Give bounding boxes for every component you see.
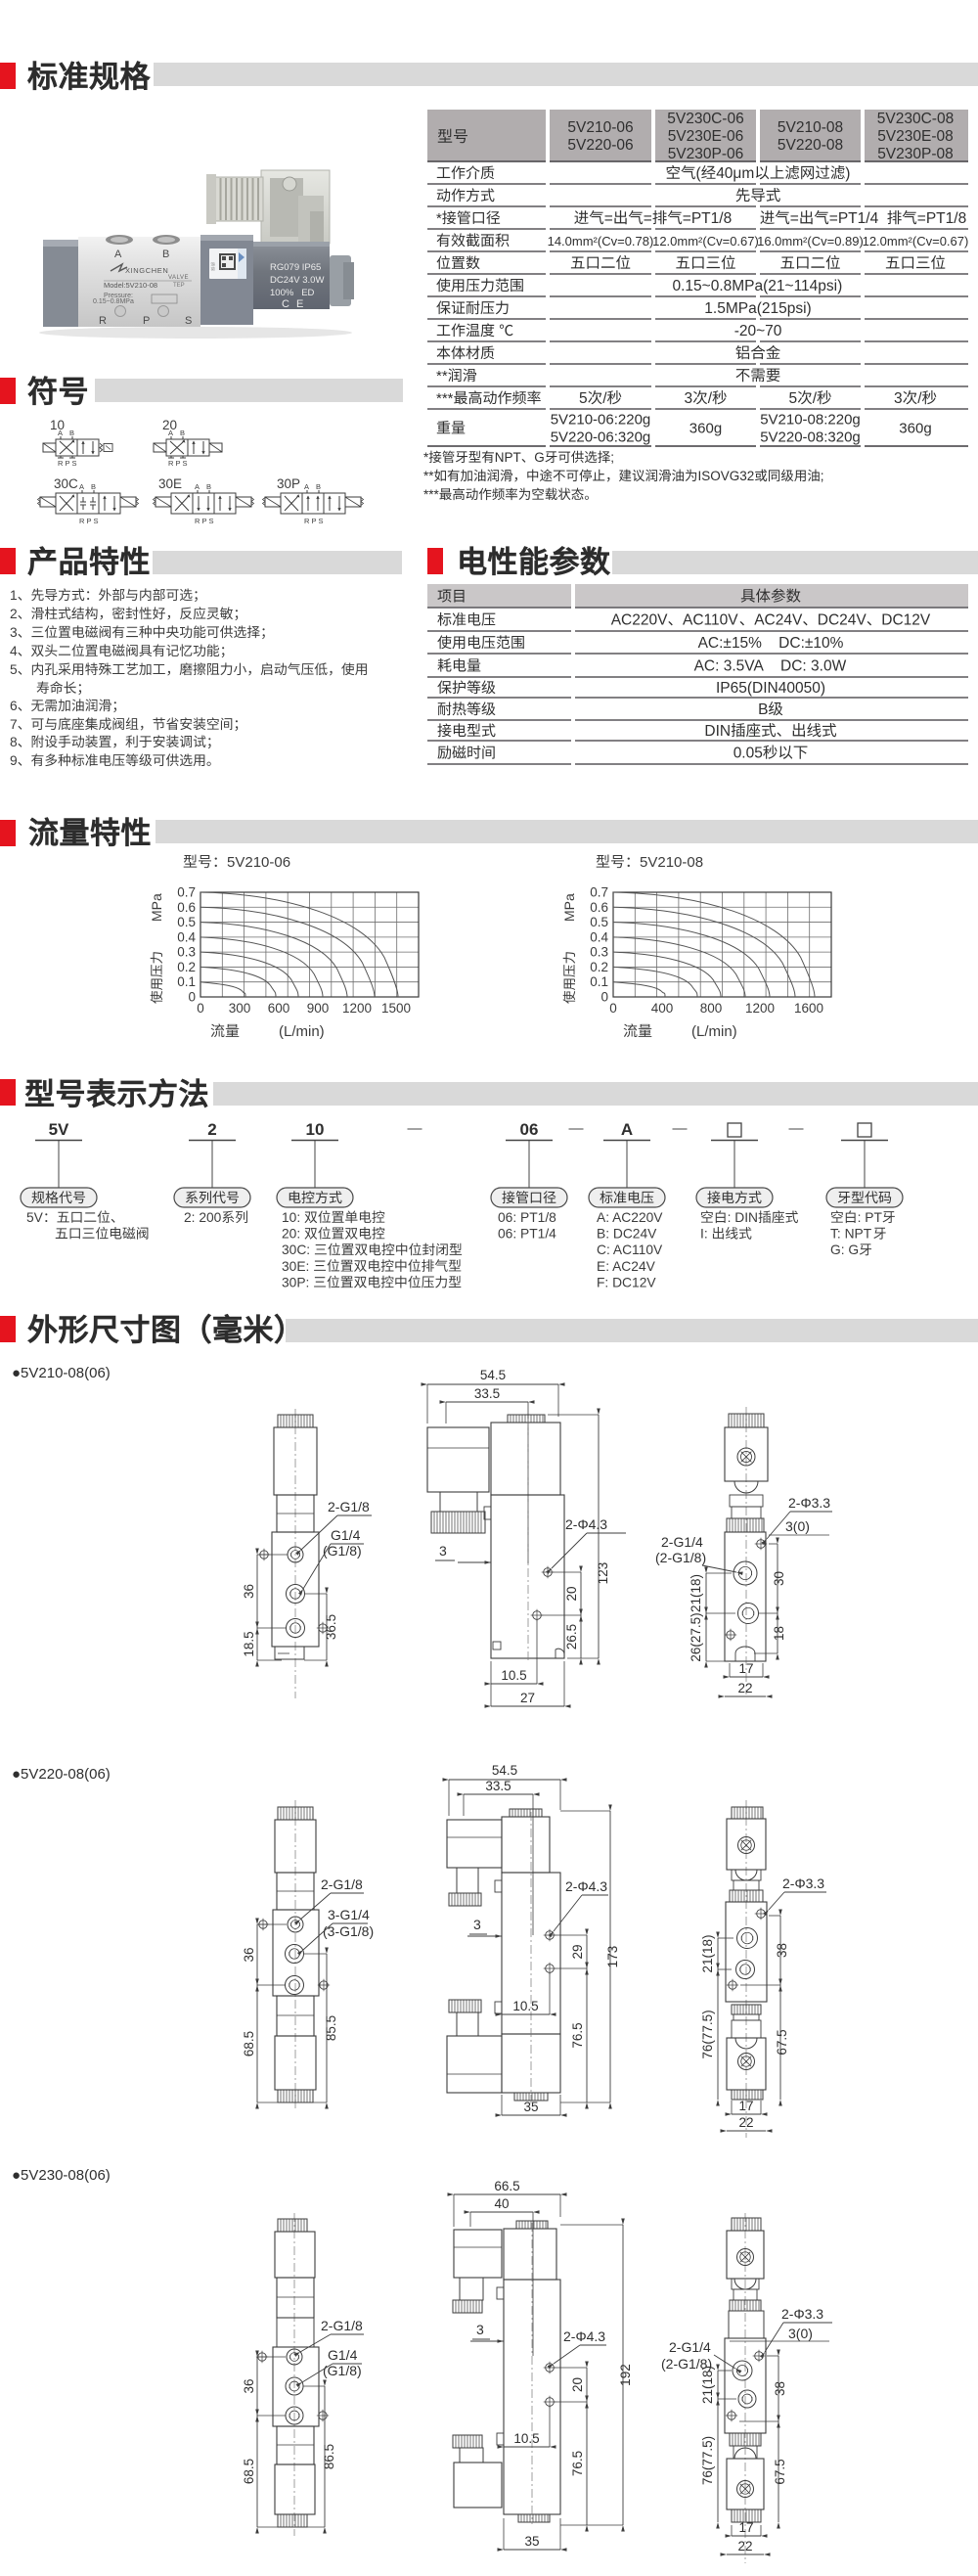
svg-text:MPa: MPa xyxy=(149,893,164,922)
svg-text:G1/4: G1/4 xyxy=(331,1527,361,1543)
svg-text:DC24V: DC24V xyxy=(818,612,867,629)
svg-text:10.5: 10.5 xyxy=(512,1999,538,2013)
svg-text:(L/min): (L/min) xyxy=(691,1023,737,1040)
svg-text:20: 20 xyxy=(570,2377,585,2392)
svg-text:B: B xyxy=(69,429,74,437)
svg-text:18.5: 18.5 xyxy=(242,1631,256,1656)
svg-text:300: 300 xyxy=(229,1001,251,1016)
svg-text:0.1: 0.1 xyxy=(590,974,608,989)
svg-text:0: 0 xyxy=(609,1001,617,1016)
svg-text:(: ( xyxy=(696,165,702,182)
svg-text:0.2: 0.2 xyxy=(590,960,608,974)
svg-text:800: 800 xyxy=(700,1001,723,1016)
svg-text:06: PT1/4: 06: PT1/4 xyxy=(498,1227,556,1242)
svg-text:600: 600 xyxy=(268,1001,290,1016)
svg-text:21(18): 21(18) xyxy=(700,1934,715,1972)
svg-text:10: 10 xyxy=(306,1120,325,1139)
svg-text:=: = xyxy=(790,210,799,227)
svg-text:22: 22 xyxy=(738,1681,753,1695)
svg-text:=: = xyxy=(604,210,613,227)
svg-text:B: B xyxy=(316,482,321,491)
svg-text:36: 36 xyxy=(242,1947,256,1962)
svg-text:5V230E-08: 5V230E-08 xyxy=(877,128,954,145)
svg-text:C: AC110V: C: AC110V xyxy=(597,1243,663,1257)
svg-text:RG079 IP65: RG079 IP65 xyxy=(270,262,321,273)
svg-text:): ) xyxy=(845,165,850,182)
svg-text:12.0mm²(Cv=0.67): 12.0mm²(Cv=0.67) xyxy=(863,234,969,249)
svg-text:A: A xyxy=(195,482,200,491)
svg-text:30: 30 xyxy=(772,1571,786,1586)
svg-text:3: 3 xyxy=(685,390,693,407)
svg-text:3(0): 3(0) xyxy=(785,1518,810,1534)
svg-text:20:: 20: xyxy=(282,1227,300,1242)
svg-text:5: 5 xyxy=(579,390,588,407)
svg-text:1500: 1500 xyxy=(381,1001,411,1016)
svg-text:=PT1/4: =PT1/4 xyxy=(829,210,887,227)
svg-text:0.7: 0.7 xyxy=(177,885,196,900)
svg-text:1600: 1600 xyxy=(794,1001,823,1016)
svg-text:/: / xyxy=(813,390,818,407)
svg-text:100% ED: 100% ED xyxy=(270,288,315,298)
svg-text:8: 8 xyxy=(10,735,18,749)
svg-text:;: ; xyxy=(821,469,824,483)
svg-text:36.5: 36.5 xyxy=(324,1614,338,1640)
svg-text:E: AC24V: E: AC24V xyxy=(597,1259,656,1274)
svg-text:●5V230-08(06): ●5V230-08(06) xyxy=(12,2167,111,2184)
svg-text:F: DC12V: F: DC12V xyxy=(597,1275,656,1289)
svg-text:76(77.5): 76(77.5) xyxy=(700,2010,715,2058)
svg-text:0: 0 xyxy=(189,990,197,1005)
svg-text:0.7: 0.7 xyxy=(590,885,608,900)
svg-text:;: ; xyxy=(610,450,614,465)
svg-text:2-G1/8: 2-G1/8 xyxy=(321,1876,363,1892)
svg-text:18: 18 xyxy=(772,1626,786,1641)
svg-text:38: 38 xyxy=(775,1943,789,1958)
svg-text:(L/min): (L/min) xyxy=(279,1023,325,1040)
svg-text:30C: 30C xyxy=(54,476,78,491)
svg-text:: DIN: : DIN xyxy=(728,1210,758,1225)
svg-text:5V220-06: 5V220-06 xyxy=(567,137,633,154)
svg-text:-20~70: -20~70 xyxy=(734,323,782,339)
svg-text:AC220V: AC220V xyxy=(611,612,668,629)
svg-text:76(77.5): 76(77.5) xyxy=(700,2436,715,2485)
svg-text:3: 3 xyxy=(476,2322,484,2337)
svg-text:5V220-06:320g: 5V220-06:320g xyxy=(551,429,651,446)
svg-text:26.5: 26.5 xyxy=(564,1624,579,1650)
svg-text:3: 3 xyxy=(894,390,903,407)
svg-text:76.5: 76.5 xyxy=(570,2022,585,2048)
svg-text:0.6: 0.6 xyxy=(590,900,608,915)
svg-text:2-G1/4: 2-G1/4 xyxy=(661,1534,703,1550)
svg-text:36: 36 xyxy=(242,2378,256,2393)
svg-text:2-Φ3.3: 2-Φ3.3 xyxy=(782,1876,824,1891)
svg-text:●5V210-08(06): ●5V210-08(06) xyxy=(12,1365,111,1381)
svg-text:—: — xyxy=(569,1120,584,1137)
svg-text:A: A xyxy=(114,249,122,260)
svg-text:B: B xyxy=(162,249,169,260)
svg-text:*: * xyxy=(436,210,442,227)
svg-text:G: G xyxy=(534,450,545,465)
svg-text:A: A xyxy=(621,1120,633,1139)
svg-text:36: 36 xyxy=(242,1584,256,1599)
svg-text:*: * xyxy=(423,450,429,465)
svg-text:A: AC220V: A: AC220V xyxy=(597,1210,663,1225)
svg-text:AC: 3.5VA DC: 3.0W: AC: 3.5VA DC: 3.0W xyxy=(694,658,847,675)
svg-text:0.4: 0.4 xyxy=(590,929,608,944)
svg-text:10:: 10: xyxy=(282,1210,300,1225)
svg-text:5V220-08:320g: 5V220-08:320g xyxy=(760,429,861,446)
svg-text:AC24V: AC24V xyxy=(754,612,803,629)
svg-text:3(0): 3(0) xyxy=(788,2326,813,2341)
svg-text:67.5: 67.5 xyxy=(775,2029,789,2055)
svg-text:2-G1/4: 2-G1/4 xyxy=(669,2339,711,2355)
svg-text:DIN: DIN xyxy=(704,723,731,740)
svg-text:A: A xyxy=(168,429,173,437)
svg-text:1200: 1200 xyxy=(342,1001,372,1016)
svg-text:173: 173 xyxy=(605,1946,620,1968)
svg-text:/: / xyxy=(917,390,922,407)
svg-text:5: 5 xyxy=(10,662,18,677)
svg-text:40: 40 xyxy=(495,2196,510,2211)
svg-text:5V210-08:220g: 5V210-08:220g xyxy=(760,412,861,429)
svg-text:27: 27 xyxy=(520,1691,535,1705)
svg-text:ISOVG32: ISOVG32 xyxy=(698,469,755,483)
svg-text:68.5: 68.5 xyxy=(242,2031,256,2056)
svg-text:400: 400 xyxy=(651,1001,674,1016)
svg-text:7: 7 xyxy=(10,717,18,732)
svg-text:10.5: 10.5 xyxy=(501,1668,526,1683)
svg-text:21(18): 21(18) xyxy=(689,1574,703,1612)
svg-text:C E: C E xyxy=(282,298,305,310)
svg-text:30P: 30P xyxy=(277,476,300,491)
svg-text:MPa: MPa xyxy=(561,893,577,922)
svg-text:360g: 360g xyxy=(899,421,931,437)
svg-text:5V230P-08: 5V230P-08 xyxy=(877,146,954,162)
svg-text:0: 0 xyxy=(601,990,609,1005)
svg-text:T: NPT: T: NPT xyxy=(830,1227,872,1242)
svg-text:66.5: 66.5 xyxy=(494,2179,519,2193)
svg-text:5V220-08: 5V220-08 xyxy=(778,137,843,154)
svg-text:6: 6 xyxy=(10,699,18,713)
svg-text:21(18): 21(18) xyxy=(700,2366,715,2404)
svg-text:76.5: 76.5 xyxy=(570,2451,585,2476)
svg-text:14.0mm²(Cv=0.78): 14.0mm²(Cv=0.78) xyxy=(548,234,654,249)
svg-text:40μm: 40μm xyxy=(716,165,754,182)
svg-text:: PT: : PT xyxy=(858,1210,883,1225)
svg-text:(G1/8): (G1/8) xyxy=(323,1543,362,1559)
svg-text:12.0mm²(Cv=0.67): 12.0mm²(Cv=0.67) xyxy=(652,234,759,249)
svg-text:IP65(DIN40050): IP65(DIN40050) xyxy=(716,680,825,697)
svg-text:29: 29 xyxy=(570,1944,585,1959)
svg-text:54.5: 54.5 xyxy=(492,1763,517,1778)
svg-text:3-G1/4: 3-G1/4 xyxy=(328,1907,370,1922)
svg-text:33.5: 33.5 xyxy=(485,1779,511,1793)
svg-text:900: 900 xyxy=(307,1001,330,1016)
svg-text:30P:: 30P: xyxy=(282,1275,309,1289)
svg-text:DC12V: DC12V xyxy=(881,612,931,629)
svg-text:0.05: 0.05 xyxy=(733,746,763,762)
svg-text:35: 35 xyxy=(524,2100,539,2114)
svg-text:/: / xyxy=(602,390,607,407)
svg-text:2-G1/8: 2-G1/8 xyxy=(321,2318,363,2333)
svg-text:**: ** xyxy=(436,368,448,384)
svg-text:AC:±15% DC:±10%: AC:±15% DC:±10% xyxy=(698,635,844,652)
svg-text:VALVE: VALVE xyxy=(168,275,189,281)
svg-text:30E: 30E xyxy=(158,476,182,491)
svg-text:5V210-08: 5V210-08 xyxy=(640,854,703,871)
svg-text:5V230P-06: 5V230P-06 xyxy=(668,146,744,162)
svg-text:DC24V 3.0W: DC24V 3.0W xyxy=(270,275,324,286)
svg-text:5V230E-06: 5V230E-06 xyxy=(668,128,744,145)
svg-text:0.2: 0.2 xyxy=(177,960,196,974)
svg-text:A: A xyxy=(304,482,309,491)
svg-text:XINGCHEN: XINGCHEN xyxy=(125,266,168,275)
svg-text:I:: I: xyxy=(700,1227,708,1242)
svg-text:2-Φ4.3: 2-Φ4.3 xyxy=(565,1878,607,1894)
svg-text:22: 22 xyxy=(738,2539,753,2553)
svg-text:Model:5V210-08: Model:5V210-08 xyxy=(104,281,157,290)
svg-text:P: P xyxy=(143,315,150,327)
svg-text:68.5: 68.5 xyxy=(242,2459,256,2484)
svg-text:2-Φ3.3: 2-Φ3.3 xyxy=(781,2306,823,2322)
svg-text:67.5: 67.5 xyxy=(773,2459,787,2484)
svg-text:TEP: TEP xyxy=(173,283,185,289)
svg-text:0.6: 0.6 xyxy=(177,900,196,915)
svg-text:G: G: G: G xyxy=(830,1243,859,1257)
svg-text:●5V220-08(06): ●5V220-08(06) xyxy=(12,1766,111,1783)
svg-text:5V: 5V xyxy=(26,1210,44,1225)
svg-text:20: 20 xyxy=(564,1586,579,1601)
svg-text:1.5MPa(215psi): 1.5MPa(215psi) xyxy=(704,300,811,317)
svg-text:30E:: 30E: xyxy=(282,1259,309,1274)
svg-text:1200: 1200 xyxy=(745,1001,775,1016)
svg-text:38: 38 xyxy=(773,2381,787,2396)
svg-text:0.4: 0.4 xyxy=(177,929,196,944)
svg-text:33.5: 33.5 xyxy=(474,1386,500,1401)
svg-text:B: B xyxy=(758,701,768,718)
svg-text:B: DC24V: B: DC24V xyxy=(597,1227,657,1242)
svg-text:123: 123 xyxy=(596,1562,610,1585)
svg-text:=PT1/8: =PT1/8 xyxy=(683,210,732,227)
svg-text:10.5: 10.5 xyxy=(513,2431,539,2446)
svg-text:85.5: 85.5 xyxy=(324,2015,338,2041)
svg-text:2: 2 xyxy=(10,607,18,621)
svg-text:3: 3 xyxy=(439,1543,447,1559)
svg-text:0.3: 0.3 xyxy=(177,945,196,960)
svg-text:16.0mm²(Cv=0.89): 16.0mm²(Cv=0.89) xyxy=(757,234,864,249)
svg-text:5V230C-06: 5V230C-06 xyxy=(667,111,743,127)
svg-text:5V210-06: 5V210-06 xyxy=(567,119,633,136)
svg-text:R P S: R P S xyxy=(58,459,76,468)
svg-text:0.15~0.8MPa(21~114psi): 0.15~0.8MPa(21~114psi) xyxy=(673,278,843,294)
svg-text:54.5: 54.5 xyxy=(480,1368,506,1382)
svg-text:G1/4: G1/4 xyxy=(328,2347,358,2363)
svg-text:AC110V: AC110V xyxy=(683,612,738,629)
svg-text:3: 3 xyxy=(10,625,18,640)
svg-text:A: A xyxy=(79,482,84,491)
svg-text:2-Φ4.3: 2-Φ4.3 xyxy=(563,2328,605,2344)
svg-text:360g: 360g xyxy=(689,421,722,437)
svg-text:5: 5 xyxy=(789,390,798,407)
svg-text:17: 17 xyxy=(739,2099,754,2113)
svg-text:**: ** xyxy=(423,469,434,483)
svg-text:5V210-08: 5V210-08 xyxy=(778,119,843,136)
svg-text:5V210-06:220g: 5V210-06:220g xyxy=(551,412,651,429)
svg-text:5V210-06: 5V210-06 xyxy=(227,854,290,871)
svg-text:R P S: R P S xyxy=(195,517,213,525)
svg-text:30C:: 30C: xyxy=(282,1243,310,1257)
svg-text:0.15~0.8MPa: 0.15~0.8MPa xyxy=(93,298,134,305)
svg-text:0.5: 0.5 xyxy=(177,915,196,929)
svg-text:192: 192 xyxy=(618,2364,633,2386)
svg-text:(G1/8): (G1/8) xyxy=(323,2363,362,2378)
svg-text:(2-G1/8): (2-G1/8) xyxy=(655,1550,706,1565)
svg-text:5V: 5V xyxy=(49,1120,69,1139)
svg-text:—: — xyxy=(673,1120,688,1137)
svg-text:0.1: 0.1 xyxy=(177,974,196,989)
svg-text:R P S: R P S xyxy=(304,517,323,525)
svg-text:—: — xyxy=(408,1120,422,1137)
svg-text:06: 06 xyxy=(520,1120,539,1139)
svg-text:17: 17 xyxy=(739,2520,754,2535)
svg-text:06: PT1/8: 06: PT1/8 xyxy=(498,1210,556,1225)
svg-text:2-Φ3.3: 2-Φ3.3 xyxy=(788,1495,830,1511)
svg-text:S: S xyxy=(185,315,192,327)
svg-text:22: 22 xyxy=(739,2115,754,2130)
svg-text:—: — xyxy=(789,1120,804,1137)
svg-text:R: R xyxy=(99,315,107,327)
svg-text:B: B xyxy=(180,429,185,437)
svg-text:0: 0 xyxy=(197,1001,204,1016)
svg-text:9: 9 xyxy=(10,753,18,768)
svg-text:2: 200: 2: 200 xyxy=(184,1210,222,1225)
svg-text:A: A xyxy=(58,429,63,437)
svg-text:3: 3 xyxy=(473,1917,481,1932)
svg-text:***: *** xyxy=(436,390,454,407)
svg-text:/: / xyxy=(708,390,713,407)
svg-text:R P S: R P S xyxy=(168,459,187,468)
svg-text:R P S: R P S xyxy=(79,517,98,525)
svg-text:4: 4 xyxy=(10,644,18,658)
svg-text:1: 1 xyxy=(10,588,18,603)
svg-text:0.5: 0.5 xyxy=(590,915,608,929)
svg-text:B: B xyxy=(206,482,211,491)
svg-text:NPT: NPT xyxy=(495,450,521,465)
svg-text:=: = xyxy=(644,210,652,227)
svg-text:35: 35 xyxy=(525,2534,540,2549)
svg-text:2: 2 xyxy=(207,1120,216,1139)
svg-text:26(27.5): 26(27.5) xyxy=(689,1612,703,1661)
svg-text:2-Φ4.3: 2-Φ4.3 xyxy=(565,1516,607,1532)
svg-text:5V230C-08: 5V230C-08 xyxy=(877,111,954,127)
svg-text:0.3: 0.3 xyxy=(590,945,608,960)
svg-text:B: B xyxy=(91,482,96,491)
svg-text:2-G1/8: 2-G1/8 xyxy=(328,1499,370,1514)
svg-text:***: *** xyxy=(423,487,440,502)
svg-text:17: 17 xyxy=(739,1661,754,1676)
svg-text:86.5: 86.5 xyxy=(322,2444,336,2469)
svg-text:=PT1/8: =PT1/8 xyxy=(917,210,966,227)
